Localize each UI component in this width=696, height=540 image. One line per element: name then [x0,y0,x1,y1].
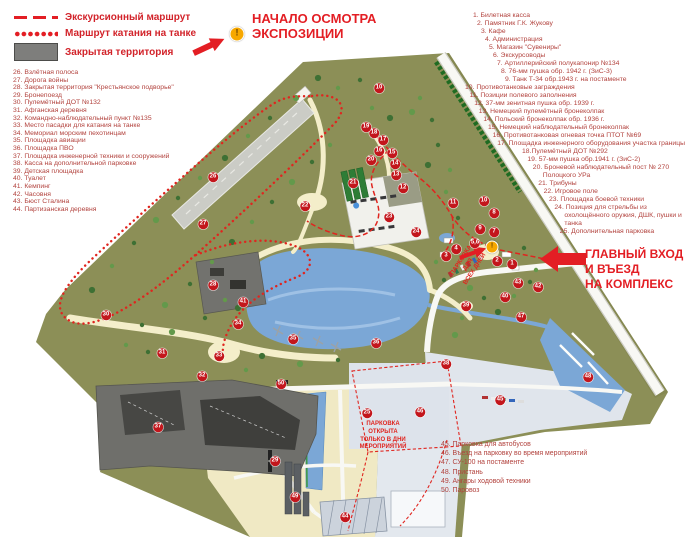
list-item: 43. Бюст Сталина [13,198,231,206]
list-item: 14. Польский бронеколпак обр. 1936 г. [483,116,688,124]
list-item: 38. Касса на дополнительной парковке [13,160,231,168]
callout-start-viewing: НАЧАЛО ОСМОТРА ЭКСПОЗИЦИИ [252,12,376,41]
list-item: 28. Закрытая территория "Крестьянское по… [13,84,231,92]
poi-list-bottom: 45. Парковка для автобусов46. Въезд на п… [441,440,683,495]
list-item: 30. Пулемётный ДОТ №132 [13,99,231,107]
poi-list-right: 1. Билетная касса2. Памятник Г.К. Жукову… [462,12,688,236]
list-item: 39. Детская площадка [13,168,231,176]
list-item: 22. Игровое поле [544,188,688,196]
legend-label: Закрытая территория [65,47,173,58]
poi-list-left: 26. Взлётная полоса27. Дорога войны28. З… [13,69,231,213]
list-item: 48. Пристань [441,468,683,477]
list-item: 42. Часовня [13,191,231,199]
legend: Экскурсионный маршрут Маршрут катания на… [14,11,196,64]
list-item: 40. Туалет [13,175,231,183]
list-item: 50. Паровоз [441,486,683,495]
list-item: 37. Площадка инженерной техники и сооруж… [13,153,231,161]
list-item: 24. Позиция для стрельбы из охолощённого… [554,204,688,228]
list-item: 8. 76-мм пушка обр. 1942 г. (ЗиС-3) [501,68,688,76]
list-item: 34. Мемориал морским пехотинцам [13,130,231,138]
legend-item-excursion-route: Экскурсионный маршрут [14,11,196,24]
legend-item-tank-ride-route: Маршрут катания на танке [14,27,196,40]
start-viewing-arrow-icon [190,34,234,60]
label-parking-events-only: ПАРКОВКА ОТКРЫТА ТОЛЬКО В ДНИ МЕРОПРИЯТИ… [348,421,418,452]
list-item: 47. СУ-100 на постаменте [441,458,683,467]
excursion-route-swatch [14,16,58,20]
list-item: 2. Памятник Г.К. Жукову [477,20,688,28]
list-item: 26. Взлётная полоса [13,69,231,77]
list-item: 32. Командно-наблюдательный пункт №135 [13,115,231,123]
list-item: 11. Позиции полевого заполнения [470,92,688,100]
list-item: 15. Немецкий наблюдательный бронеколпак [488,124,688,132]
list-item: 16. Противотанковая огневая точка ПТОТ №… [493,132,688,140]
list-item: 9. Танк Т-34 обр.1943 г. на постаменте [505,76,688,84]
list-item: 41. Кемпинг [13,183,231,191]
list-item: 1. Билетная касса [473,12,688,20]
list-item: 27. Дорога войны [13,77,231,85]
main-entrance-arrow-icon [540,245,586,273]
closed-territory-swatch [14,43,58,61]
list-item: 31. Афганская деревня [13,107,231,115]
list-item: 33. Место пасадки для катания на танке [13,122,231,130]
list-item: 5. Магазин "Сувениры" [489,44,688,52]
list-item: 21. Трибуны [538,180,688,188]
list-item: 49. Ангары ходовой техники [441,477,683,486]
list-item: 10. Противотанковые заграждения [465,84,688,92]
list-item: 23. Площадка боевой техники [549,196,688,204]
list-item: 18.Пулемётный ДОТ №292 [522,148,688,156]
list-item: 45. Парковка для автобусов [441,440,683,449]
list-item: 3. Кафе [481,28,688,36]
list-item: 19. 57-мм пушка обр.1941 г. (ЗиС-2) [527,156,688,164]
legend-label: Маршрут катания на танке [65,28,196,39]
tank-ride-route-swatch [14,31,58,37]
list-item: 20. Броневой наблюдательный пост № 270 П… [533,164,688,180]
list-item: 13. Немецкий пулемётный бронеколпак [479,108,688,116]
list-item: 4. Администрация [485,36,688,44]
callout-main-entrance: ГЛАВНЫЙ ВХОД И ВЪЕЗД НА КОМПЛЕКС [585,247,695,293]
list-item: 7. Артиллерийский полукапонир №134 [497,60,688,68]
list-item: 35. Площадка авиации [13,137,231,145]
complex-map-page: Экскурсионный маршрут Маршрут катания на… [0,0,696,540]
list-item: 12. 37-мм зенитная пушка обр. 1939 г. [474,100,688,108]
list-item: 46. Въезд на парковку во время мероприят… [441,449,683,458]
list-item: 6. Экскурсоводы [493,52,688,60]
legend-item-closed-territory: Закрытая территория [14,43,196,61]
list-item: 44. Партизанская деревня [13,206,231,214]
list-item: 17. Площадка инженерного оборудования уч… [497,140,688,148]
parking-arrow-icon [458,243,492,261]
list-item: 25. Дополнительная парковка [560,228,688,236]
list-item: 36. Площадка ПВО [13,145,231,153]
legend-label: Экскурсионный маршрут [65,12,190,23]
